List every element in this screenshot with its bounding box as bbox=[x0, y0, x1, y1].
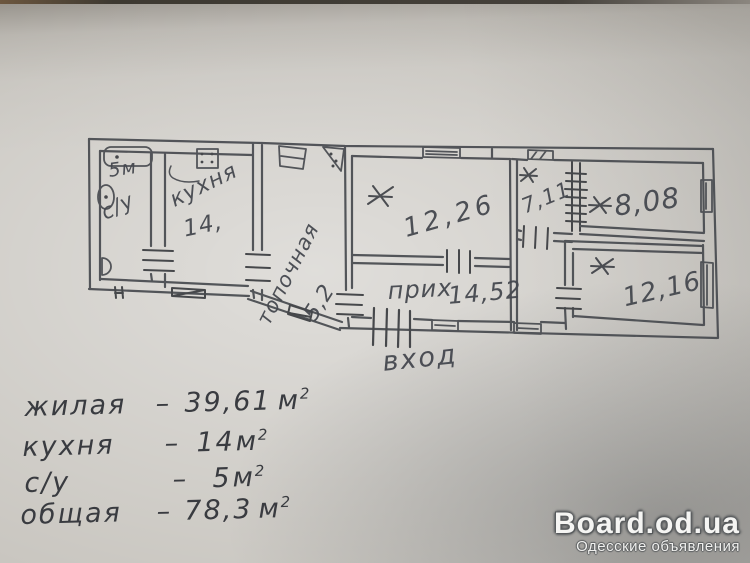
outer-walls bbox=[89, 139, 718, 338]
watermark-tagline: Одесские объявления bbox=[554, 539, 740, 555]
boiler-room-walls bbox=[345, 147, 352, 327]
room-1216-door-hatch bbox=[556, 288, 581, 309]
toilet-icon bbox=[102, 258, 111, 275]
summary-label: общая bbox=[20, 497, 145, 531]
summary-label: жилая bbox=[24, 389, 143, 423]
summary-value: 78,3 bbox=[184, 494, 253, 527]
summary-value: 14 bbox=[196, 426, 235, 458]
boiler-room-window-icon bbox=[279, 146, 306, 169]
flue-triangle-icon bbox=[323, 147, 344, 171]
summary-dash: – bbox=[144, 496, 185, 528]
summary-unit: м2 bbox=[258, 493, 293, 525]
summary-label: с/у bbox=[24, 465, 149, 499]
room-711-door-hatch bbox=[523, 226, 548, 249]
summary-value: 5 bbox=[212, 463, 232, 494]
hallway-label: прих bbox=[387, 274, 453, 305]
window-icon-top-1 bbox=[423, 147, 460, 158]
summary-row-bathroom: с/у – 5 м2 bbox=[24, 462, 267, 499]
window-icon-bottom-1 bbox=[432, 320, 458, 331]
window-icon-top-2 bbox=[528, 150, 553, 160]
summary-value: 39,61 bbox=[184, 386, 272, 419]
summary-unit: м2 bbox=[232, 462, 267, 494]
photographed-floor-plan-sheet: 5м с/у кухня 14, топочная 5,2 12,26 7,11… bbox=[0, 0, 750, 563]
room-1226-door-hatch bbox=[447, 250, 470, 273]
bathroom-area-label: 5м bbox=[107, 156, 138, 182]
summary-row-kitchen: кухня – 14 м2 bbox=[22, 426, 270, 463]
summary-dash: – bbox=[148, 427, 197, 459]
watermark: Board.od.ua Одесские объявления bbox=[554, 508, 740, 555]
summary-label: кухня bbox=[22, 429, 149, 463]
summary-dash: – bbox=[148, 463, 213, 496]
room-711-walls bbox=[517, 230, 572, 242]
summary-unit: м2 bbox=[235, 426, 270, 458]
entrance-door-hatch bbox=[373, 308, 410, 347]
watermark-site-name: Board.od.ua bbox=[554, 508, 740, 540]
summary-unit: м2 bbox=[277, 384, 312, 416]
summary-dash: – bbox=[142, 388, 185, 420]
